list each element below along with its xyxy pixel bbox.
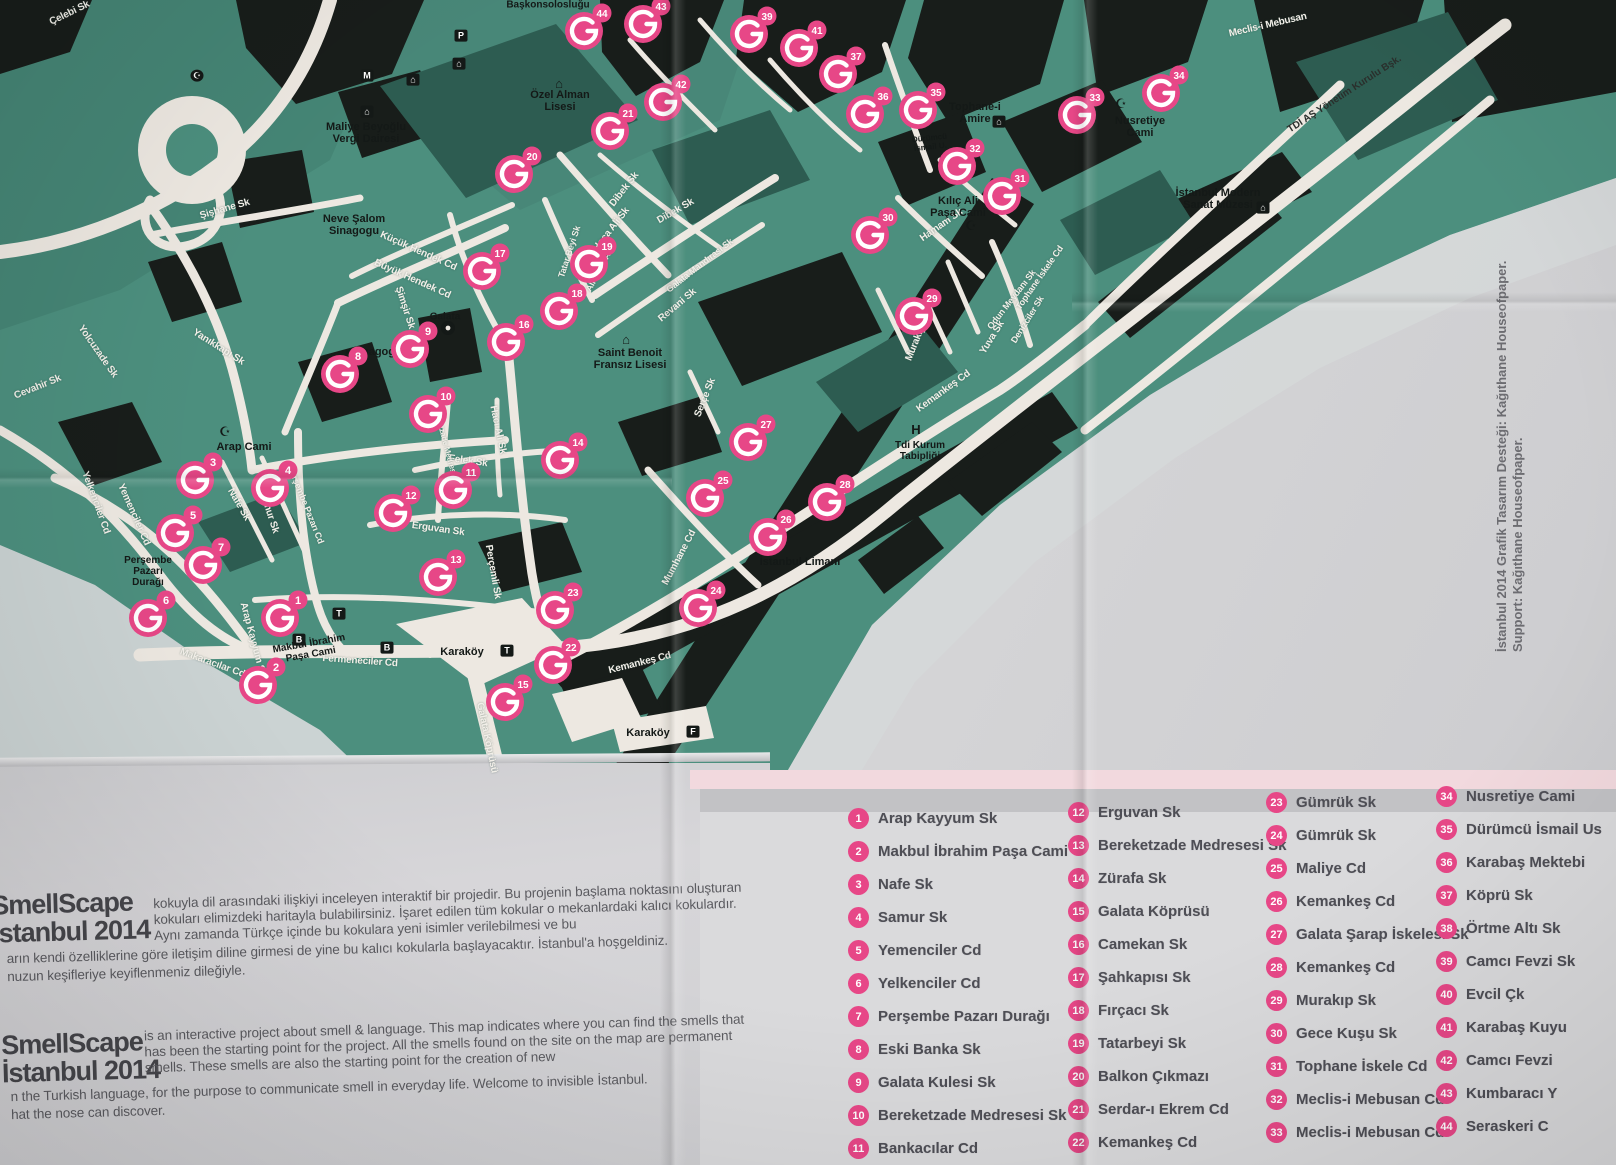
legend-label: Nusretiye Cami bbox=[1466, 788, 1575, 805]
legend-number-badge: 20 bbox=[1068, 1066, 1089, 1087]
legend-label: Arap Kayyum Sk bbox=[878, 810, 997, 827]
map-marker-41[interactable]: 41 bbox=[776, 19, 828, 71]
legend-label: Meclis-i Mebusan Cd bbox=[1296, 1091, 1444, 1108]
legend-number-badge: 18 bbox=[1068, 1000, 1089, 1021]
legend-item-18: 18Fırçacı Sk bbox=[1068, 994, 1286, 1027]
legend-label: Nafe Sk bbox=[878, 876, 933, 893]
legend-number-badge: 15 bbox=[1068, 901, 1089, 922]
svg-text:20: 20 bbox=[526, 152, 538, 163]
legend-number-badge: 34 bbox=[1436, 786, 1457, 807]
legend-item-41: 41Karabaş Kuyu bbox=[1436, 1011, 1602, 1044]
legend-label: Örtme Altı Sk bbox=[1466, 920, 1560, 937]
legend-number-badge: 36 bbox=[1436, 852, 1457, 873]
credit-design: İstanbul 2014 Grafik Tasarım Desteği: Ka… bbox=[1494, 192, 1510, 652]
legend-item-22: 22Kemankeş Cd bbox=[1068, 1126, 1286, 1159]
legend-item-10: 10Bereketzade Medresesi Sk bbox=[848, 1099, 1068, 1132]
legend-number-badge: 29 bbox=[1266, 990, 1287, 1011]
legend-number-badge: 2 bbox=[848, 841, 869, 862]
legend-number-badge: 3 bbox=[848, 874, 869, 895]
legend-column-4: 34Nusretiye Cami35Dürümcü İsmail Us36Kar… bbox=[1436, 780, 1602, 1143]
legend-number-badge: 43 bbox=[1436, 1083, 1457, 1104]
svg-text:27: 27 bbox=[760, 420, 772, 431]
legend-label: Camcı Fevzi Sk bbox=[1466, 953, 1575, 970]
svg-text:3: 3 bbox=[210, 457, 216, 469]
legend-number-badge: 44 bbox=[1436, 1116, 1457, 1137]
legend-label: Kemankeş Cd bbox=[1296, 893, 1395, 910]
legend-label: Serdar-ı Ekrem Cd bbox=[1098, 1101, 1229, 1118]
map-marker-8[interactable]: 8 bbox=[317, 345, 369, 397]
intro-text-en: is an interactive project about smell & … bbox=[144, 1011, 770, 1076]
legend-number-badge: 5 bbox=[848, 940, 869, 961]
legend-label: Murakıp Sk bbox=[1296, 992, 1376, 1009]
svg-text:35: 35 bbox=[930, 88, 942, 99]
svg-text:34: 34 bbox=[1173, 71, 1185, 82]
legend-label: Bankacılar Cd bbox=[878, 1140, 978, 1157]
legend-item-7: 7Perşembe Pazarı Durağı bbox=[848, 1000, 1068, 1033]
legend-label: Erguvan Sk bbox=[1098, 804, 1181, 821]
svg-text:16: 16 bbox=[518, 320, 530, 331]
legend-item-44: 44Seraskeri C bbox=[1436, 1110, 1602, 1143]
legend-number-badge: 13 bbox=[1068, 835, 1089, 856]
legend-label: Evcil Çk bbox=[1466, 986, 1524, 1003]
svg-text:11: 11 bbox=[466, 468, 477, 479]
legend-item-37: 37Köprü Sk bbox=[1436, 879, 1602, 912]
legend-item-3: 3Nafe Sk bbox=[848, 868, 1068, 901]
legend-number-badge: 38 bbox=[1436, 918, 1457, 939]
map-marker-9[interactable]: 9 bbox=[387, 320, 439, 372]
legend-item-42: 42Camcı Fevzi bbox=[1436, 1044, 1602, 1077]
legend-label: Kumbaracı Y bbox=[1466, 1085, 1557, 1102]
svg-text:23: 23 bbox=[567, 588, 579, 599]
legend-label: Yelkenciler Cd bbox=[878, 975, 981, 992]
svg-text:26: 26 bbox=[780, 515, 792, 526]
map-marker-7[interactable]: 7 bbox=[180, 536, 232, 588]
svg-text:14: 14 bbox=[572, 438, 584, 449]
svg-text:17: 17 bbox=[494, 249, 506, 260]
legend-number-badge: 26 bbox=[1266, 891, 1287, 912]
legend-label: Gece Kuşu Sk bbox=[1296, 1025, 1397, 1042]
map-marker-1[interactable]: 1 bbox=[257, 589, 309, 641]
svg-text:36: 36 bbox=[877, 92, 889, 103]
legend-number-badge: 12 bbox=[1068, 802, 1089, 823]
legend-number-badge: 32 bbox=[1266, 1089, 1287, 1110]
legend-label: Dürümcü İsmail Us bbox=[1466, 821, 1602, 838]
map-marker-10[interactable]: 10 bbox=[405, 385, 457, 437]
project-logo-en: SmellScape İstanbul 2014 bbox=[1, 1028, 161, 1087]
map-marker-20[interactable]: 20 bbox=[491, 145, 543, 197]
svg-text:39: 39 bbox=[761, 12, 773, 23]
legend-label: Meclis-i Mebusan Cd bbox=[1296, 1124, 1444, 1141]
legend-number-badge: 33 bbox=[1266, 1122, 1287, 1143]
legend-label: Galata Köprüsü bbox=[1098, 903, 1210, 920]
legend-label: Gümrük Sk bbox=[1296, 794, 1376, 811]
legend-label: Makbul İbrahim Paşa Cami bbox=[878, 843, 1068, 860]
map-marker-35[interactable]: 35 bbox=[895, 81, 947, 133]
legend-number-badge: 24 bbox=[1266, 825, 1287, 846]
svg-text:21: 21 bbox=[622, 109, 634, 120]
svg-text:15: 15 bbox=[517, 680, 529, 691]
map-markers-layer: 1234567891011121314151617181920212223242… bbox=[0, 0, 1616, 770]
credit-support: Support: Kağıthane Houseofpaper. bbox=[1510, 192, 1526, 652]
legend-label: Kemankeş Cd bbox=[1296, 959, 1395, 976]
legend-label: Köprü Sk bbox=[1466, 887, 1533, 904]
legend-label: Camekan Sk bbox=[1098, 936, 1187, 953]
map-marker-28[interactable]: 28 bbox=[804, 473, 856, 525]
legend-number-badge: 37 bbox=[1436, 885, 1457, 906]
legend-label: Eski Banka Sk bbox=[878, 1041, 981, 1058]
legend-label: Camcı Fevzi bbox=[1466, 1052, 1553, 1069]
legend-item-2: 2Makbul İbrahim Paşa Cami bbox=[848, 835, 1068, 868]
legend-label: Maliye Cd bbox=[1296, 860, 1366, 877]
legend-number-badge: 16 bbox=[1068, 934, 1089, 955]
legend-label: Fırçacı Sk bbox=[1098, 1002, 1169, 1019]
legend-item-5: 5Yemenciler Cd bbox=[848, 934, 1068, 967]
svg-text:29: 29 bbox=[926, 294, 938, 305]
legend-label: Bereketzade Medresesi Sk bbox=[1098, 837, 1286, 854]
smellscape-map-photo: Çelebi SkŞişhane SkKüçük Hendek CdBüyük … bbox=[0, 0, 1616, 1165]
map-marker-39[interactable]: 39 bbox=[726, 5, 778, 57]
svg-text:28: 28 bbox=[839, 480, 851, 491]
map-marker-42[interactable]: 42 bbox=[640, 73, 692, 125]
map-marker-17[interactable]: 17 bbox=[459, 242, 511, 294]
legend-label: Zürafa Sk bbox=[1098, 870, 1166, 887]
map-marker-19[interactable]: 19 bbox=[566, 235, 618, 287]
legend-number-badge: 9 bbox=[848, 1072, 869, 1093]
legend-item-40: 40Evcil Çk bbox=[1436, 978, 1602, 1011]
svg-text:1: 1 bbox=[295, 595, 301, 607]
legend-label: Karabaş Mektebi bbox=[1466, 854, 1585, 871]
map-marker-16[interactable]: 16 bbox=[483, 313, 535, 365]
svg-text:43: 43 bbox=[655, 2, 667, 13]
svg-text:19: 19 bbox=[601, 242, 613, 253]
legend-item-1: 1Arap Kayyum Sk bbox=[848, 802, 1068, 835]
legend-number-badge: 7 bbox=[848, 1006, 869, 1027]
legend-label: Yemenciler Cd bbox=[878, 942, 981, 959]
svg-text:8: 8 bbox=[355, 351, 361, 363]
legend-label: Tatarbeyi Sk bbox=[1098, 1035, 1186, 1052]
legend-number-badge: 25 bbox=[1266, 858, 1287, 879]
map-marker-22[interactable]: 22 bbox=[530, 636, 582, 688]
map-marker-30[interactable]: 30 bbox=[847, 206, 899, 258]
legend-item-21: 21Serdar-ı Ekrem Cd bbox=[1068, 1093, 1286, 1126]
svg-text:33: 33 bbox=[1089, 93, 1101, 104]
map-marker-24[interactable]: 24 bbox=[675, 579, 727, 631]
legend-number-badge: 8 bbox=[848, 1039, 869, 1060]
legend-item-16: 16Camekan Sk bbox=[1068, 928, 1286, 961]
legend-label: Balkon Çıkmazı bbox=[1098, 1068, 1209, 1085]
svg-text:30: 30 bbox=[882, 213, 894, 224]
svg-text:41: 41 bbox=[811, 26, 823, 37]
map-marker-14[interactable]: 14 bbox=[537, 431, 589, 483]
legend-number-badge: 41 bbox=[1436, 1017, 1457, 1038]
legend-item-12: 12Erguvan Sk bbox=[1068, 796, 1286, 829]
legend-label: Kemankeş Cd bbox=[1098, 1134, 1197, 1151]
map-marker-34[interactable]: 34 bbox=[1138, 64, 1190, 116]
svg-text:6: 6 bbox=[163, 595, 169, 607]
svg-text:32: 32 bbox=[969, 144, 981, 155]
legend-label: Samur Sk bbox=[878, 909, 947, 926]
map-marker-15[interactable]: 15 bbox=[482, 673, 534, 725]
legend-number-badge: 21 bbox=[1068, 1099, 1089, 1120]
legend-label: Bereketzade Medresesi Sk bbox=[878, 1107, 1066, 1124]
map-marker-6[interactable]: 6 bbox=[125, 589, 177, 641]
legend-number-badge: 11 bbox=[848, 1138, 869, 1159]
legend-number-badge: 31 bbox=[1266, 1056, 1287, 1077]
map-marker-3[interactable]: 3 bbox=[172, 451, 224, 503]
legend-item-19: 19Tatarbeyi Sk bbox=[1068, 1027, 1286, 1060]
legend-item-11: 11Bankacılar Cd bbox=[848, 1132, 1068, 1165]
legend-number-badge: 28 bbox=[1266, 957, 1287, 978]
legend-label: Galata Kulesi Sk bbox=[878, 1074, 996, 1091]
legend-item-15: 15Galata Köprüsü bbox=[1068, 895, 1286, 928]
legend-item-9: 9Galata Kulesi Sk bbox=[848, 1066, 1068, 1099]
svg-text:13: 13 bbox=[450, 555, 462, 566]
legend-number-badge: 14 bbox=[1068, 868, 1089, 889]
map-marker-18[interactable]: 18 bbox=[536, 282, 588, 334]
legend-number-badge: 17 bbox=[1068, 967, 1089, 988]
svg-text:9: 9 bbox=[425, 326, 431, 338]
map-marker-32[interactable]: 32 bbox=[934, 137, 986, 189]
map-marker-31[interactable]: 31 bbox=[979, 167, 1031, 219]
legend-column-1: 1Arap Kayyum Sk2Makbul İbrahim Paşa Cami… bbox=[848, 802, 1068, 1165]
svg-text:5: 5 bbox=[190, 510, 196, 522]
map-marker-26[interactable]: 26 bbox=[745, 508, 797, 560]
legend-number-badge: 35 bbox=[1436, 819, 1457, 840]
legend-number-badge: 27 bbox=[1266, 924, 1287, 945]
map-marker-13[interactable]: 13 bbox=[415, 548, 467, 600]
svg-text:37: 37 bbox=[850, 52, 862, 63]
map-marker-44[interactable]: 44 bbox=[561, 2, 613, 54]
legend-column-2: 12Erguvan Sk13Bereketzade Medresesi Sk14… bbox=[1068, 796, 1286, 1159]
map-marker-27[interactable]: 27 bbox=[725, 413, 777, 465]
map-marker-21[interactable]: 21 bbox=[587, 102, 639, 154]
map-marker-29[interactable]: 29 bbox=[891, 287, 943, 339]
map-marker-23[interactable]: 23 bbox=[532, 581, 584, 633]
legend-number-badge: 23 bbox=[1266, 792, 1287, 813]
svg-text:25: 25 bbox=[717, 476, 729, 487]
map-marker-4[interactable]: 4 bbox=[247, 459, 299, 511]
legend-number-badge: 4 bbox=[848, 907, 869, 928]
legend-number-badge: 1 bbox=[848, 808, 869, 829]
map-marker-43[interactable]: 43 bbox=[620, 0, 672, 47]
legend-item-17: 17Şahkapısı Sk bbox=[1068, 961, 1286, 994]
legend-item-38: 38Örtme Altı Sk bbox=[1436, 912, 1602, 945]
map-marker-25[interactable]: 25 bbox=[682, 469, 734, 521]
svg-text:7: 7 bbox=[218, 542, 224, 554]
legend-item-6: 6Yelkenciler Cd bbox=[848, 967, 1068, 1000]
legend-number-badge: 42 bbox=[1436, 1050, 1457, 1071]
legend-number-badge: 39 bbox=[1436, 951, 1457, 972]
legend-item-14: 14Zürafa Sk bbox=[1068, 862, 1286, 895]
legend-label: Gümrük Sk bbox=[1296, 827, 1376, 844]
svg-text:4: 4 bbox=[285, 465, 292, 477]
credits: İstanbul 2014 Grafik Tasarım Desteği: Ka… bbox=[1494, 192, 1526, 652]
svg-text:22: 22 bbox=[565, 643, 577, 654]
legend-item-35: 35Dürümcü İsmail Us bbox=[1436, 813, 1602, 846]
map-marker-11[interactable]: 11 bbox=[430, 461, 482, 513]
legend-item-20: 20Balkon Çıkmazı bbox=[1068, 1060, 1286, 1093]
legend-label: Perşembe Pazarı Durağı bbox=[878, 1008, 1050, 1025]
legend-label: Seraskeri C bbox=[1466, 1118, 1549, 1135]
project-logo-tr: SmellScape İstanbul 2014 bbox=[0, 888, 150, 947]
legend-label: Şahkapısı Sk bbox=[1098, 969, 1191, 986]
legend-item-43: 43Kumbaracı Y bbox=[1436, 1077, 1602, 1110]
legend-item-13: 13Bereketzade Medresesi Sk bbox=[1068, 829, 1286, 862]
legend-item-34: 34Nusretiye Cami bbox=[1436, 780, 1602, 813]
map-marker-12[interactable]: 12 bbox=[370, 484, 422, 536]
map-marker-33[interactable]: 33 bbox=[1054, 86, 1106, 138]
svg-text:12: 12 bbox=[405, 491, 417, 502]
legend-item-39: 39Camcı Fevzi Sk bbox=[1436, 945, 1602, 978]
legend-item-4: 4Samur Sk bbox=[848, 901, 1068, 934]
svg-text:10: 10 bbox=[440, 392, 452, 403]
legend-label: Karabaş Kuyu bbox=[1466, 1019, 1567, 1036]
legend-item-36: 36Karabaş Mektebi bbox=[1436, 846, 1602, 879]
legend-number-badge: 6 bbox=[848, 973, 869, 994]
map-marker-2[interactable]: 2 bbox=[235, 656, 287, 708]
legend-number-badge: 40 bbox=[1436, 984, 1457, 1005]
svg-text:2: 2 bbox=[273, 662, 279, 674]
legend-number-badge: 19 bbox=[1068, 1033, 1089, 1054]
legend-number-badge: 30 bbox=[1266, 1023, 1287, 1044]
svg-text:24: 24 bbox=[710, 586, 722, 597]
svg-text:44: 44 bbox=[596, 9, 608, 20]
svg-text:18: 18 bbox=[571, 289, 583, 300]
legend-number-badge: 22 bbox=[1068, 1132, 1089, 1153]
svg-text:31: 31 bbox=[1014, 174, 1026, 185]
legend-number-badge: 10 bbox=[848, 1105, 869, 1126]
legend-label: Tophane İskele Cd bbox=[1296, 1058, 1427, 1075]
legend-item-8: 8Eski Banka Sk bbox=[848, 1033, 1068, 1066]
svg-text:42: 42 bbox=[675, 80, 687, 91]
